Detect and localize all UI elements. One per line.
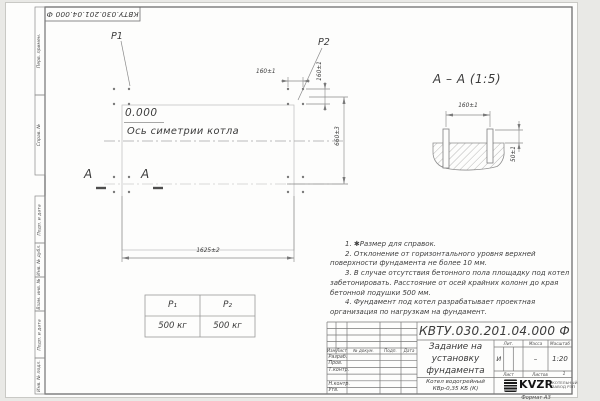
section-mark-a-left: А (84, 167, 92, 181)
margin-field-podp-data-2: Подп. и дата (35, 311, 45, 358)
lit-label: Лит. (494, 341, 523, 347)
loads-table-value-p2: 500 кг (200, 316, 255, 337)
loads-table-value-p1: 500 кг (145, 316, 200, 337)
dim-bolt-protrusion: 50±1 (511, 144, 517, 164)
sheets-total-value: 1 (558, 372, 570, 378)
dim-section-bolt-spacing: 160±1 (453, 103, 483, 109)
product-name-line2: КВр-0,35 КБ (К) (417, 386, 494, 393)
product-name-line1: Котел водогрейный (417, 379, 494, 386)
note-1: 1. ✱Размер для справок. (330, 240, 577, 250)
factory-logo-caption-line2: ЗАВОД РЭП (552, 385, 578, 390)
col-header-data: Дата (401, 348, 417, 354)
row-label-razrab: Разраб. (329, 355, 348, 360)
row-label-prov: Пров. (329, 361, 343, 366)
factory-logo-text: KVZR (519, 378, 553, 391)
col-header-list: Лист (336, 348, 347, 354)
factory-logo-caption: КОТЕЛЬНЫЙ ЗАВОД РЭП (552, 381, 578, 391)
margin-field-perv-primen: Перв. примен. (35, 7, 45, 95)
row-label-nkontr: Н.контр. (329, 382, 350, 387)
lit-value: И (494, 347, 504, 371)
margin-field-podp-data-1: Подп. и дата (35, 196, 45, 243)
factory-logo-emblem (504, 379, 517, 392)
document-title: Задание на установку фундамента (417, 341, 494, 377)
row-label-tkontr: Т.контр. (329, 368, 350, 373)
document-title-line1: Задание на (417, 341, 494, 353)
dim-bolt-spacing-horizontal: 160±1 (256, 69, 276, 75)
product-name: Котел водогрейный КВр-0,35 КБ (К) (417, 379, 494, 393)
symmetry-axis-label: Ось симетрии котла (127, 126, 239, 137)
anchor-bolt-right (487, 129, 493, 163)
dim-foundation-depth: 660±3 (335, 124, 341, 148)
col-header-izm: Изм. (327, 348, 336, 354)
margin-field-vzam-inv: Взам. инв. № (35, 277, 45, 311)
loads-table-header-p1: Р₁ (145, 295, 200, 316)
mass-value: – (523, 347, 548, 371)
scale-label: Масштаб (548, 341, 572, 347)
loads-table-header-p2: Р₂ (200, 295, 255, 316)
dim-bolt-spacing-vertical: 160±1 (317, 59, 323, 83)
technical-notes: 1. ✱Размер для справок. 2. Отклонение от… (330, 240, 577, 318)
note-4: 4. Фундамент под котел разрабатывает про… (330, 298, 577, 317)
document-title-line3: фундамента (417, 365, 494, 377)
load-leaders (121, 41, 322, 100)
load-point-p2-label: Р2 (318, 37, 330, 48)
anchor-bolt-left (443, 129, 449, 168)
margin-field-inv-podl: Инв. № подл. (35, 358, 45, 394)
note-2: 2. Отклонение от горизонтального уровня … (330, 250, 577, 269)
plan-view (96, 41, 348, 262)
section-view-title: А – А (1:5) (433, 72, 501, 86)
col-header-doc: № докум. (347, 348, 380, 354)
col-header-podp: Подп. (380, 348, 401, 354)
scale-value: 1:20 (548, 347, 572, 371)
mass-label: Масса (523, 341, 548, 347)
dim-foundation-length: 1625±2 (186, 248, 230, 254)
section-view (433, 111, 523, 170)
title-block-designation: КВТУ.030.201.04.000 Ф (417, 323, 572, 341)
document-title-line2: установку (417, 353, 494, 365)
section-mark-a-right: А (141, 167, 149, 181)
margin-field-sprav-n: Справ. № (35, 95, 45, 175)
note-3: 3. В случае отсутствия бетонного пола пл… (330, 269, 577, 298)
row-label-utv: Утв. (329, 388, 339, 393)
load-point-p1-label: Р1 (111, 31, 123, 42)
top-designation-stamp: КВТУ.030.201.04.000 Ф (45, 7, 140, 21)
margin-field-inv-dubl: Инв. № дубл. (35, 243, 45, 277)
drawing-sheet: КВТУ.030.201.04.000 Ф Перв. примен. Спра… (0, 0, 600, 400)
elevation-mark: 0.000 (125, 107, 158, 119)
